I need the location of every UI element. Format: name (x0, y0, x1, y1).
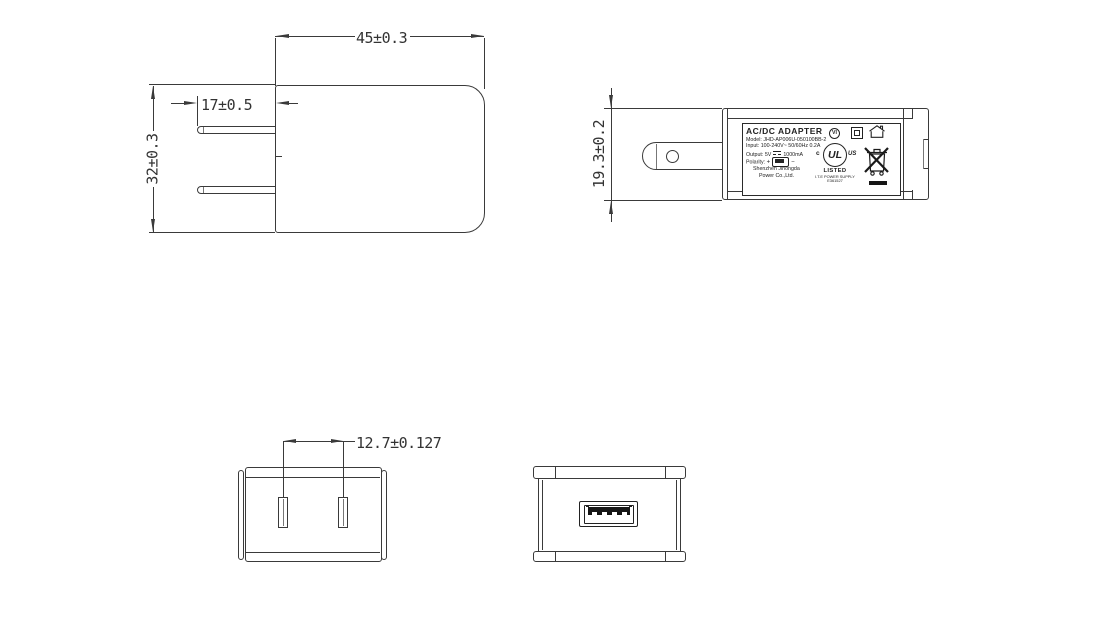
usbview-inner-line-right (676, 480, 677, 550)
dim-pitch-ext-right (343, 441, 344, 497)
dim-pitch-tail (344, 441, 355, 442)
usb-contact-1 (592, 512, 597, 516)
dim-pitch-arrow-left (284, 439, 296, 443)
usbview-tab-top-right (665, 467, 666, 478)
dim-thickness-arrow-top (609, 95, 613, 108)
bottomview-inner-line-top (246, 477, 380, 478)
bottomview-slot-left-blade-line (283, 499, 284, 526)
usbview-inner-line-left (542, 480, 543, 550)
side-usb-opening-line (923, 139, 924, 169)
label-polarity: Polarity: +− (746, 157, 795, 167)
bottomview-slot-right-blade-line (343, 499, 344, 526)
dim-height-ext-top (149, 84, 275, 85)
technical-drawing-canvas: 45±0.3 17±0.5 32±0.3 19.3±0.2 AC/DC ADAP… (0, 0, 1100, 621)
side-inner-line-right (903, 109, 904, 199)
front-body-parting-tick (276, 156, 282, 157)
house-icon (869, 125, 885, 138)
usb-contact-4 (622, 512, 627, 516)
side-inner-line-top (728, 118, 912, 119)
dim-height-arrow-bottom (151, 219, 155, 232)
label-company-line1: Shenzhen Jihongda (753, 166, 800, 172)
dim-prong-tail-left (171, 103, 184, 104)
bottomview-inner-line-bottom (246, 552, 380, 553)
front-prong-lower-tip-line (203, 187, 204, 193)
label-model: Model: JHD-AP006U-050100BB-2 (746, 137, 826, 143)
label-input: Input: 100-240V~ 50/60Hz 0.2A (746, 143, 820, 149)
side-prong-arc-line (656, 144, 657, 169)
side-prong-hole (666, 150, 679, 163)
front-prong-lower (197, 186, 277, 194)
vi-level-circle-icon: VI (829, 128, 840, 139)
dim-height-text-wrap: 32±0.3 (139, 131, 167, 187)
usb-connector-icon (772, 157, 789, 167)
usbview-tab-top-left (555, 467, 556, 478)
side-endcap-divider-bottom (912, 190, 913, 200)
dim-thickness-ext-top (604, 108, 722, 109)
dim-width-ext-right (484, 38, 485, 89)
weee-bar (869, 181, 887, 186)
dim-width-arrow-left (276, 34, 289, 38)
dim-pitch-text: 12.7±0.127 (356, 434, 441, 452)
dim-pitch-ext-left (283, 441, 284, 497)
dim-prong-tail-right (289, 103, 298, 104)
class-ii-double-square-icon (851, 127, 863, 139)
dim-thickness-text: 19.3±0.2 (590, 120, 608, 188)
usbview-tab-bottom-right (665, 551, 666, 562)
side-prong (642, 142, 723, 170)
dim-height-text: 32±0.3 (144, 133, 162, 184)
dim-width-arrow-right (471, 34, 484, 38)
bottomview-side-cap-left (238, 470, 245, 560)
label-title: AC/DC ADAPTER (746, 126, 823, 136)
dim-height-arrow-top (151, 86, 155, 99)
spec-label: AC/DC ADAPTER Model: JHD-AP006U-050100BB… (742, 123, 901, 196)
usbview-tab-bottom-left (555, 551, 556, 562)
side-endcap-divider-top (912, 109, 913, 119)
side-inner-line-left (727, 109, 728, 199)
front-prong-upper (197, 126, 277, 134)
bottomview-face-outline (245, 467, 382, 562)
dim-pitch-arrow-right (331, 439, 343, 443)
dim-width-text: 45±0.3 (356, 29, 407, 47)
usb-contact-2 (602, 512, 607, 516)
weee-crossed-bin-icon (864, 145, 890, 179)
front-prong-upper-tip-line (203, 127, 204, 133)
dim-width-ext-left (275, 38, 276, 86)
dim-height-ext-bottom (149, 232, 275, 233)
label-company-line2: Power Co.,Ltd. (759, 173, 794, 179)
dim-thickness-text-wrap: 19.3±0.2 (586, 125, 612, 183)
front-adapter-body-outline (275, 85, 485, 233)
usb-contact-3 (612, 512, 617, 516)
dim-prong-arrow-left (184, 101, 197, 105)
dim-prong-text: 17±0.5 (201, 96, 252, 114)
dim-thickness-arrow-bottom (609, 201, 613, 214)
dim-prong-arrow-right (276, 101, 289, 105)
dim-thickness-ext-bottom (604, 200, 722, 201)
